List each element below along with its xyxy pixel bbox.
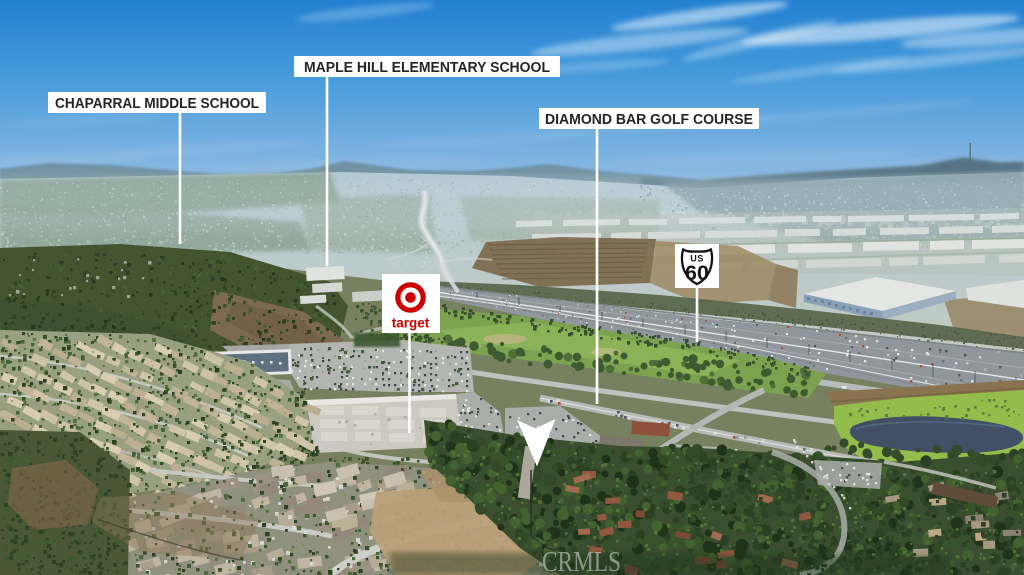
svg-text:target: target — [392, 316, 430, 331]
svg-text:60: 60 — [685, 261, 709, 285]
svg-text:MAPLE HILL ELEMENTARY SCHOOL: MAPLE HILL ELEMENTARY SCHOOL — [304, 59, 550, 76]
svg-text:CRMLS: CRMLS — [542, 547, 621, 575]
svg-text:DIAMOND BAR GOLF COURSE: DIAMOND BAR GOLF COURSE — [545, 111, 753, 128]
svg-text:CHAPARRAL MIDDLE SCHOOL: CHAPARRAL MIDDLE SCHOOL — [55, 95, 259, 112]
